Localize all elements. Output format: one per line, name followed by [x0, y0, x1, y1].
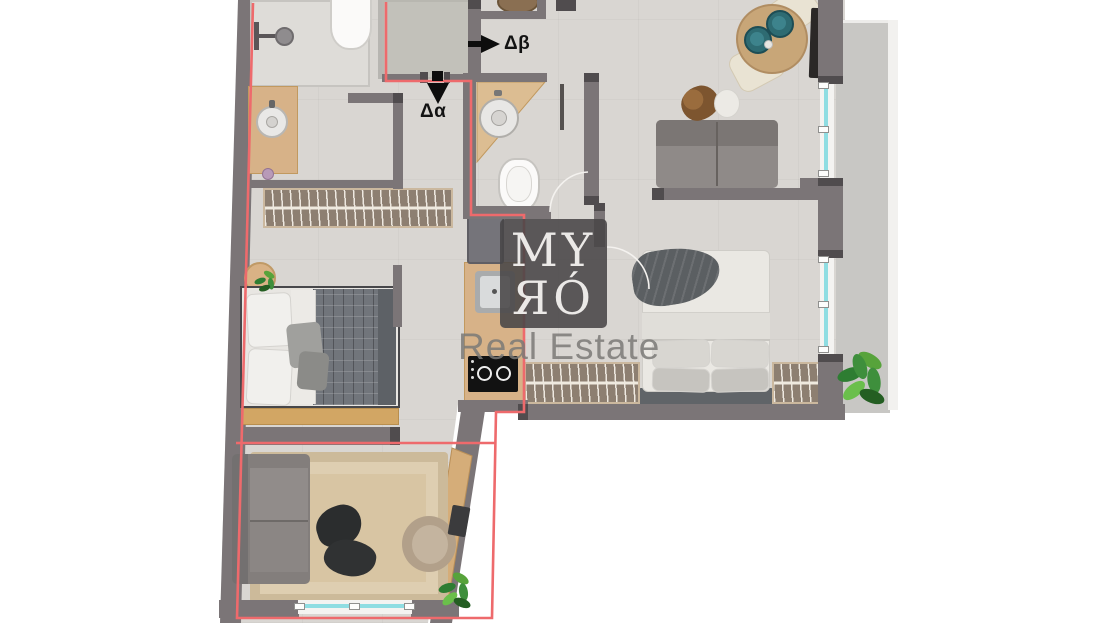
door-swing-arc [607, 247, 649, 289]
unit-boundary-red-line [237, 2, 524, 618]
watermark-line2: ЯÓ [512, 274, 595, 322]
entrance-beta-arrow-icon [468, 35, 500, 53]
watermark-line1: MY [511, 226, 596, 274]
floor-plan-canvas: Δβ Δα MY ЯÓ Real Estate [0, 0, 1110, 623]
watermark-logo: MY ЯÓ [500, 219, 607, 328]
door-swing-arc [550, 172, 588, 212]
entrance-alpha-label: Δα [420, 101, 446, 123]
entrance-alpha-arrow-icon [432, 71, 443, 81]
watermark-subtitle: Real Estate [458, 326, 660, 368]
entrance-beta-label: Δβ [504, 33, 530, 55]
